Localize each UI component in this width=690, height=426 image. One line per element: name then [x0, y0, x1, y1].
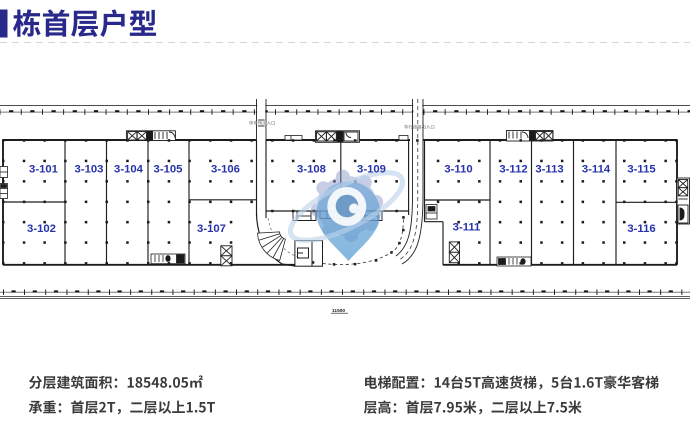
svg-text:3-103: 3-103	[75, 164, 104, 176]
svg-text:3-109: 3-109	[357, 164, 386, 176]
svg-text:3-114: 3-114	[582, 164, 611, 176]
svg-text:3-113: 3-113	[535, 164, 563, 176]
svg-text:3-108: 3-108	[297, 164, 326, 176]
svg-text:3-107: 3-107	[197, 223, 226, 235]
svg-text:3-106: 3-106	[211, 164, 240, 176]
svg-text:3-111: 3-111	[453, 222, 481, 234]
svg-text:3-116: 3-116	[627, 223, 655, 235]
svg-text:3-105: 3-105	[154, 164, 183, 176]
svg-text:3-102: 3-102	[27, 223, 56, 235]
svg-text:3-115: 3-115	[627, 164, 655, 176]
svg-text:3-104: 3-104	[114, 164, 144, 176]
svg-text:3-101: 3-101	[29, 164, 58, 176]
svg-text:3-112: 3-112	[499, 164, 527, 176]
svg-text:3-110: 3-110	[444, 164, 472, 176]
